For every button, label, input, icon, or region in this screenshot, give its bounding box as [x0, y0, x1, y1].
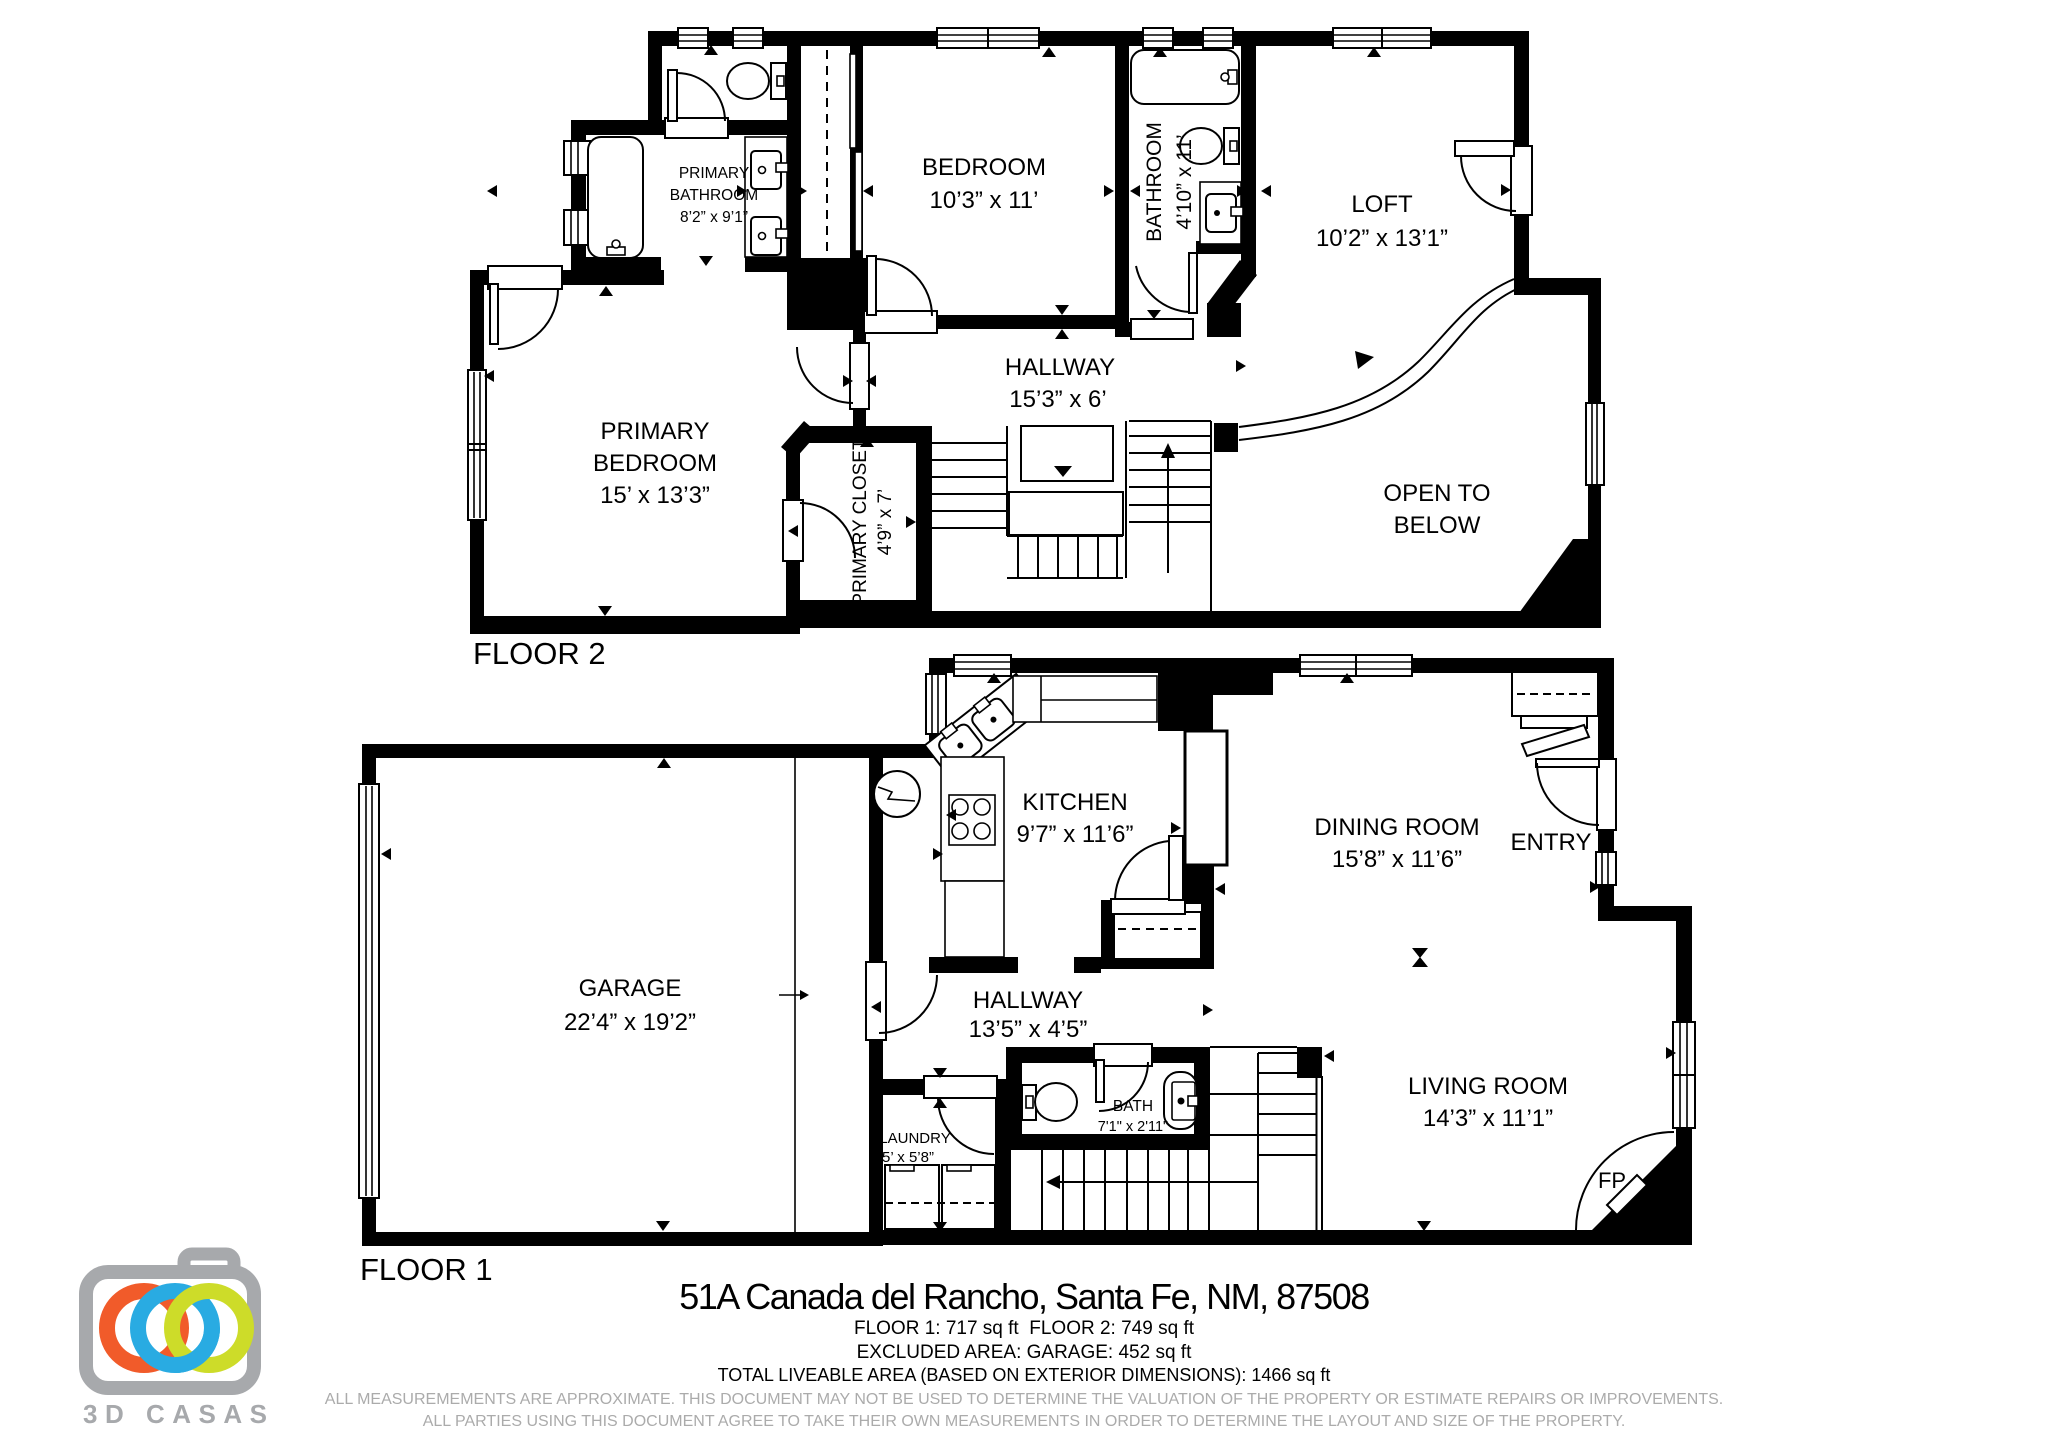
svg-text:EXCLUDED AREA: GARAGE: 452 sq: EXCLUDED AREA: GARAGE: 452 sq ft	[857, 1342, 1192, 1363]
svg-text:10’2” x 13’1”: 10’2” x 13’1”	[1316, 225, 1448, 252]
svg-text:15’ x 13’3”: 15’ x 13’3”	[600, 482, 710, 509]
svg-text:8’2” x 9’1”: 8’2” x 9’1”	[680, 209, 748, 226]
svg-text:GARAGE: GARAGE	[579, 975, 682, 1002]
svg-text:15’3” x 6’: 15’3” x 6’	[1009, 386, 1106, 413]
svg-text:FLOOR 2: FLOOR 2	[473, 636, 606, 671]
svg-text:BATHROOM: BATHROOM	[670, 187, 758, 204]
svg-text:BATHROOM: BATHROOM	[1143, 122, 1166, 242]
svg-text:BATH: BATH	[1113, 1098, 1153, 1115]
svg-text:LAUNDRY: LAUNDRY	[879, 1130, 950, 1147]
svg-text:KITCHEN: KITCHEN	[1022, 789, 1127, 816]
svg-text:PRIMARY: PRIMARY	[679, 165, 749, 182]
svg-text:9’7” x 11’6”: 9’7” x 11’6”	[1017, 821, 1134, 848]
svg-text:13’5” x 4’5”: 13’5” x 4’5”	[969, 1016, 1088, 1043]
svg-text:22’4” x 19’2”: 22’4” x 19’2”	[564, 1009, 696, 1036]
svg-text:OPEN TO: OPEN TO	[1383, 480, 1490, 507]
svg-text:LOFT: LOFT	[1351, 191, 1413, 218]
svg-text:PRIMARY: PRIMARY	[601, 418, 710, 445]
svg-text:10’3” x 11’: 10’3” x 11’	[930, 187, 1039, 214]
svg-text:51A Canada del Rancho, Santa F: 51A Canada del Rancho, Santa Fe, NM, 875…	[679, 1276, 1369, 1317]
svg-text:3D CASAS: 3D CASAS	[83, 1399, 274, 1429]
svg-text:BEDROOM: BEDROOM	[593, 450, 717, 477]
svg-text:TOTAL LIVEABLE AREA (BASED ON: TOTAL LIVEABLE AREA (BASED ON EXTERIOR D…	[718, 1365, 1331, 1385]
svg-text:7'1" x 2'11": 7'1" x 2'11"	[1098, 1119, 1168, 1135]
svg-text:HALLWAY: HALLWAY	[1005, 354, 1115, 381]
svg-text:FLOOR 1: FLOOR 1	[360, 1252, 493, 1287]
svg-text:14’3” x 11’1”: 14’3” x 11’1”	[1423, 1105, 1553, 1132]
svg-text:PRIMARY CLOSET: PRIMARY CLOSET	[850, 438, 871, 606]
svg-text:HALLWAY: HALLWAY	[973, 987, 1083, 1014]
svg-text:15’8” x 11’6”: 15’8” x 11’6”	[1332, 846, 1462, 873]
svg-text:BELOW: BELOW	[1394, 512, 1481, 539]
svg-text:5’ x 5’8”: 5’ x 5’8”	[882, 1149, 934, 1166]
svg-text:FP: FP	[1598, 1168, 1626, 1193]
svg-text:4’10” x 11’: 4’10” x 11’	[1173, 134, 1196, 229]
svg-text:FLOOR 1: 717 sq ft FLOOR 2: 7: FLOOR 1: 717 sq ft FLOOR 2: 749 sq ft	[854, 1318, 1195, 1339]
svg-text:BEDROOM: BEDROOM	[922, 154, 1046, 181]
svg-text:ENTRY: ENTRY	[1511, 829, 1592, 856]
svg-text:4’9” x 7’: 4’9” x 7’	[875, 489, 896, 556]
svg-text:DINING ROOM: DINING ROOM	[1314, 814, 1479, 841]
svg-text:ALL PARTIES USING THIS DOCUMEN: ALL PARTIES USING THIS DOCUMENT AGREE TO…	[423, 1413, 1626, 1430]
svg-text:LIVING ROOM: LIVING ROOM	[1408, 1073, 1568, 1100]
svg-text:ALL MEASUREMEMENTS ARE APPROXI: ALL MEASUREMEMENTS ARE APPROXIMATE. THIS…	[325, 1391, 1723, 1408]
